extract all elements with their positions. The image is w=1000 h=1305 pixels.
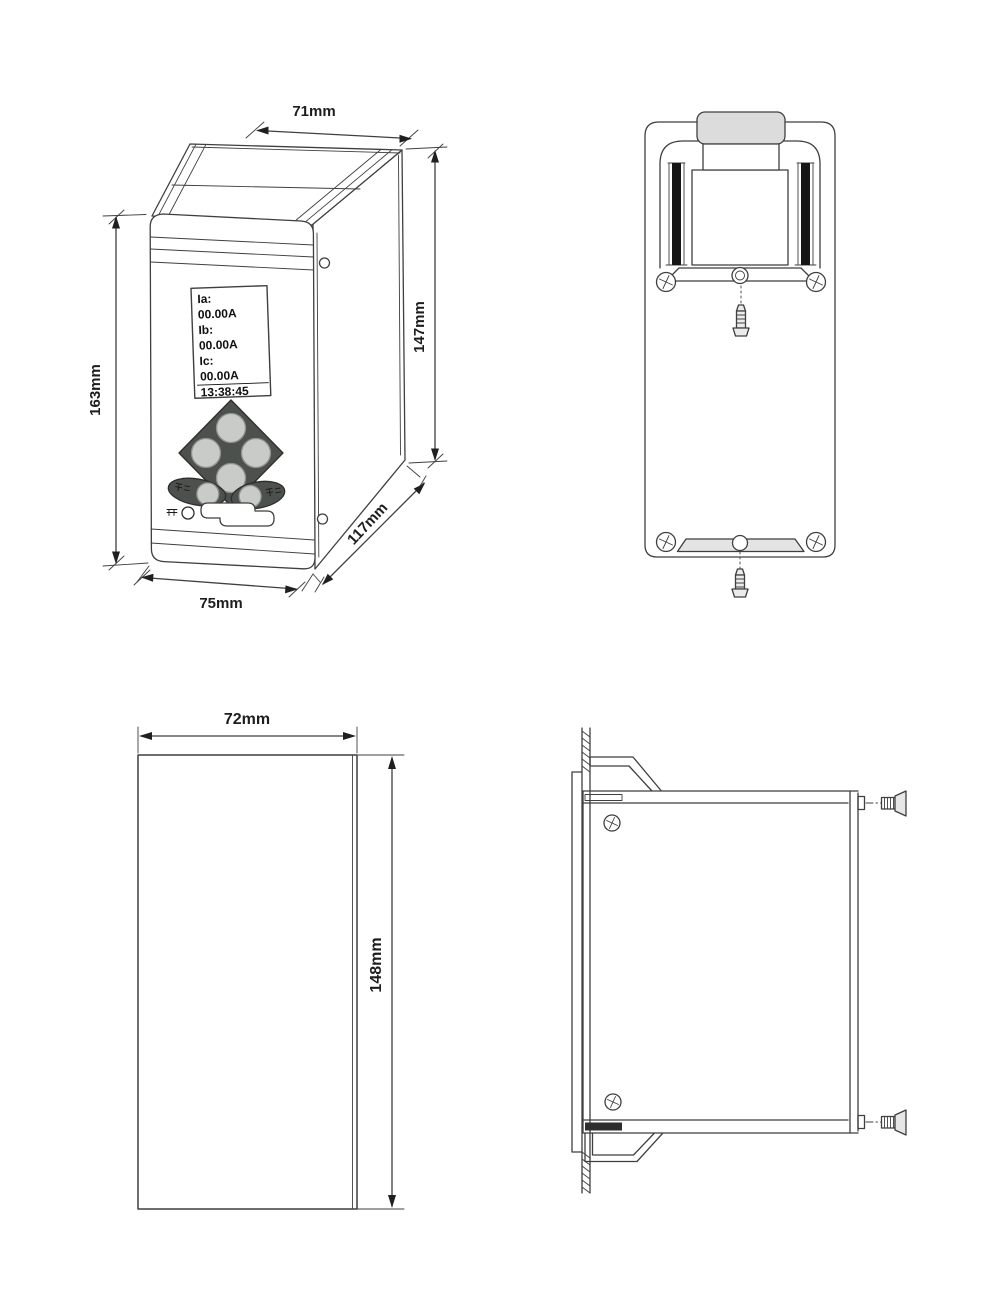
perspective-view: Ia: 00.00A Ib: 00.00A Ic: 00.00A 13:38:4… (87, 103, 447, 612)
device-body-side (583, 791, 858, 1133)
rear-top-tab-lower (703, 144, 779, 170)
rear-top-screw-hole (732, 268, 748, 284)
phillips-screw-icon-side-top (604, 815, 620, 831)
dim-label-front-height: 148mm (368, 937, 385, 992)
dim-label-top-width: 71mm (292, 103, 335, 120)
panel-hatch-top (582, 731, 590, 772)
panel-hatch-bottom (582, 1152, 590, 1193)
bottom-mounting-clip (585, 1133, 663, 1162)
side-mount-view (572, 728, 906, 1193)
drawing-sheet: Ia: 00.00A Ib: 00.00A Ic: 00.00A 13:38:4… (0, 0, 1000, 1305)
rear-bottom-screw-hole (733, 536, 748, 551)
side-screw-hole-top (320, 258, 330, 268)
dim-top-width: 71mm (246, 103, 418, 146)
lcd-line-ia: Ia: (197, 292, 211, 306)
fixing-screw-bottom (858, 1110, 906, 1135)
lcd-line-ib-value: 00.00A (199, 337, 238, 352)
lcd-line-ia-value: 00.00A (198, 306, 237, 321)
front-outline-rect (138, 755, 357, 1209)
run-led-indicator (182, 507, 194, 519)
phillips-screw-icon-top-left (657, 273, 676, 292)
nav-right-button (242, 439, 271, 468)
dim-label-left-height: 163mm (87, 364, 104, 416)
rear-center-panel (692, 170, 788, 265)
dim-right-height: 147mm (406, 144, 447, 468)
phillips-screw-icon-bottom-left (657, 533, 676, 552)
fixing-screw-top (858, 791, 906, 816)
phillips-screw-icon-top-right (807, 273, 826, 292)
lcd-line-clock: 13:38:45 (200, 384, 249, 400)
front-outline-view: 72mm 148mm (138, 711, 404, 1209)
dim-label-right-height: 147mm (411, 301, 428, 353)
mounting-screw-bottom (732, 552, 748, 597)
rear-view (645, 112, 835, 597)
technical-drawing-page: Ia: 00.00A Ib: 00.00A Ic: 00.00A 13:38:4… (0, 0, 1000, 1305)
top-mounting-clip (590, 757, 661, 791)
rear-top-tab (697, 112, 785, 144)
nav-up-button (217, 414, 246, 443)
dim-bottom-width: 75mm (134, 566, 313, 612)
side-screw-hole-bottom (318, 514, 328, 524)
dim-front-width: 72mm (138, 711, 357, 753)
phillips-screw-icon-side-bottom (605, 1094, 621, 1110)
dim-front-height: 148mm (358, 755, 404, 1209)
lcd-line-ic-value: 00.00A (200, 368, 239, 383)
lcd-line-ib: Ib: (198, 323, 213, 338)
dim-label-bottom-width: 75mm (199, 595, 242, 612)
dim-label-front-width: 72mm (224, 711, 270, 728)
lcd-line-ic: Ic: (199, 354, 213, 368)
dim-left-height: 163mm (87, 210, 148, 570)
lcd-display: Ia: 00.00A Ib: 00.00A Ic: 00.00A 13:38:4… (191, 286, 271, 400)
phillips-screw-icon-bottom-right (807, 533, 826, 552)
nav-left-button (192, 439, 221, 468)
